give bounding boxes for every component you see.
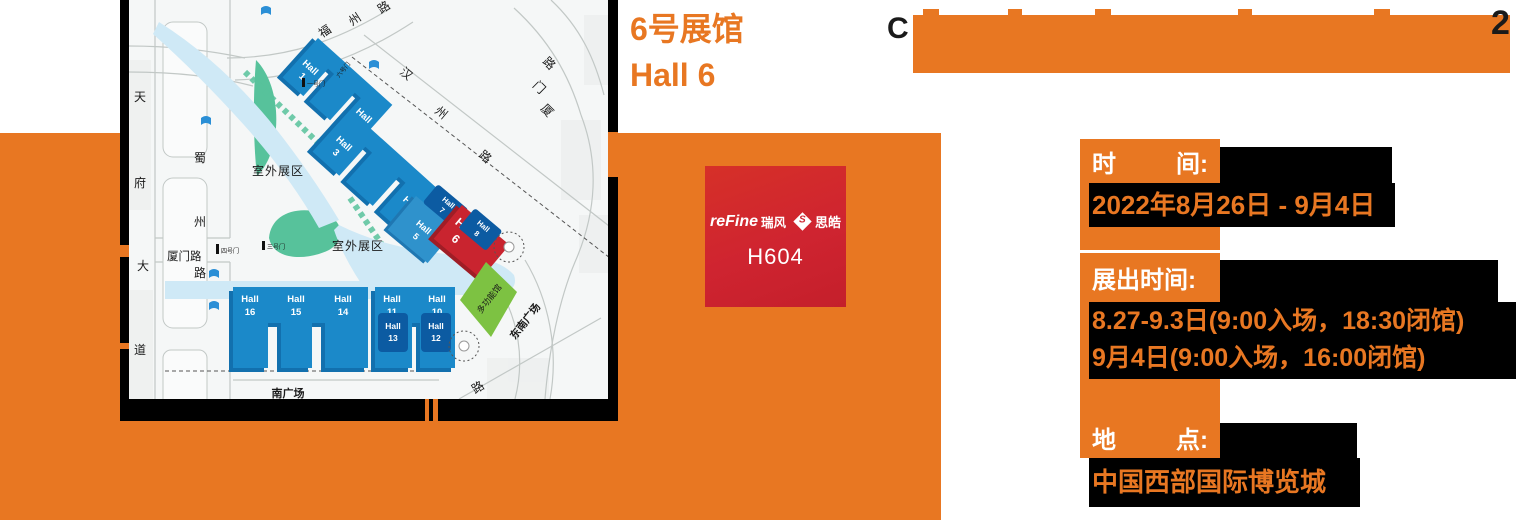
svg-text:厦门路: 厦门路 (167, 249, 202, 263)
hours-label: 展出时间: (1080, 260, 1220, 302)
title-banner: C 2 (883, 0, 1525, 80)
gate-4-label: 四号门 (221, 247, 239, 255)
gate-3-label: 三号门 (267, 243, 285, 251)
event-dates: 2022年8月26日 - 9月4日 (1092, 183, 1395, 227)
svg-text:门: 门 (530, 78, 549, 97)
sehol-diamond-icon: S (793, 212, 811, 230)
venue-map-svg: Hall1 Hall2 Hall3 Hall4 (129, 0, 608, 399)
hours-label-text: 展出时间: (1092, 260, 1196, 302)
time-label: 时 间: (1080, 147, 1220, 183)
svg-text:路: 路 (374, 0, 392, 17)
venue-map: Hall1 Hall2 Hall3 Hall4 (129, 0, 608, 399)
southeast-plaza-label: 东南广场 (507, 300, 543, 341)
hall-headline-cn: 6号展馆 (630, 6, 744, 52)
svg-text:路: 路 (469, 377, 487, 396)
hall-block-14-15-16: Hall16 Hall15 Hall14 (229, 287, 368, 372)
brand-logo: reFine 瑞风 S 思皓 (705, 212, 846, 231)
svg-text:府: 府 (134, 175, 146, 190)
svg-text:天: 天 (134, 90, 146, 104)
frame-gap (120, 343, 129, 349)
hall-block-10-11-12-13: Hall11 Hall10 Hall13 Hall12 (371, 287, 455, 372)
frame-gap (608, 132, 618, 177)
svg-text:州: 州 (194, 215, 206, 229)
banner-glyph-2: 2 (1491, 4, 1510, 42)
south-plaza-label: 南广场 (272, 386, 305, 399)
time-label-right: 间: (1176, 147, 1208, 183)
hall-headline-en: Hall 6 (630, 52, 744, 98)
outdoor-area-1-label: 室外展区 (252, 163, 304, 178)
svg-text:路: 路 (476, 147, 495, 166)
banner-glyph-c: C (887, 12, 909, 45)
venue-name: 中国西部国际博览城 (1092, 458, 1360, 507)
booth-badge: reFine 瑞风 S 思皓 H604 (705, 166, 846, 307)
hall-headline: 6号展馆 Hall 6 (630, 6, 744, 98)
time-label-left: 时 (1092, 147, 1116, 183)
svg-text:路: 路 (194, 265, 206, 280)
frame-gap (120, 245, 129, 257)
svg-text:州: 州 (432, 104, 450, 122)
svg-text:大: 大 (137, 259, 149, 273)
ruifeng-wordmark: 瑞风 (761, 212, 786, 231)
time-value: 2022年8月26日 - 9月4日 (1089, 183, 1395, 227)
sehol-wordmark: 思皓 (815, 212, 841, 231)
svg-text:路: 路 (540, 54, 559, 73)
booth-number: H604 (705, 244, 846, 270)
svg-text:州: 州 (346, 10, 364, 28)
hours-line-1: 8.27-9.3日(9:00入场，18:30闭馆) (1092, 303, 1516, 340)
location-label-left: 地 (1092, 423, 1116, 458)
frame-gap (425, 399, 429, 421)
svg-text:厦: 厦 (538, 101, 556, 119)
svg-text:道: 道 (134, 343, 146, 357)
time-black-strip (1220, 147, 1392, 183)
location-black-strip (1220, 423, 1357, 458)
hours-value: 8.27-9.3日(9:00入场，18:30闭馆) 9月4日(9:00入场，16… (1089, 302, 1516, 379)
location-label: 地 点: (1080, 423, 1220, 458)
location-value: 中国西部国际博览城 (1089, 458, 1360, 507)
svg-text:蜀: 蜀 (194, 151, 206, 165)
location-label-right: 点: (1176, 423, 1208, 458)
location-label-box: 地 点: (1080, 390, 1220, 458)
frame-gap (433, 399, 438, 421)
outdoor-area-2-label: 室外展区 (332, 238, 384, 253)
refine-wordmark: reFine (710, 213, 758, 231)
svg-text:汉: 汉 (397, 65, 415, 83)
hours-black-strip (1220, 260, 1498, 302)
svg-text:福: 福 (315, 21, 333, 40)
gate-1-label: 一号门 (307, 80, 325, 88)
hours-line-2: 9月4日(9:00入场，16:00闭馆) (1092, 340, 1516, 377)
